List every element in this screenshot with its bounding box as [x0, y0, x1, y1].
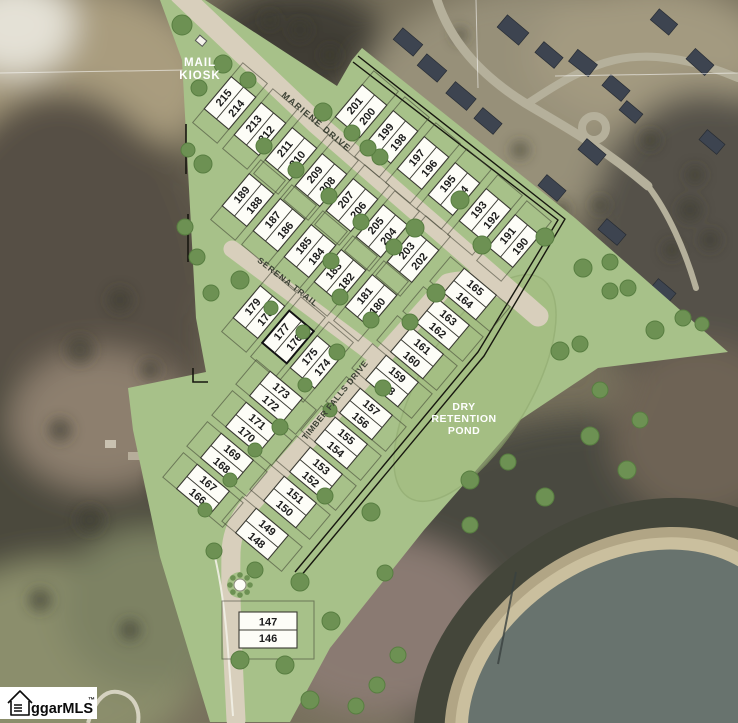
tree-icon: [646, 321, 664, 339]
tree-icon: [247, 562, 263, 578]
tree-icon: [353, 214, 369, 230]
tree-icon: [572, 336, 588, 352]
tree-icon: [291, 573, 309, 591]
tree-icon: [189, 249, 205, 265]
tree-icon: [321, 188, 337, 204]
svg-text:POND: POND: [448, 425, 480, 437]
tree-icon: [473, 236, 491, 254]
tree-icon: [240, 72, 256, 88]
tree-icon: [194, 155, 212, 173]
tree-icon: [369, 677, 385, 693]
tree-icon: [632, 412, 648, 428]
tree-icon: [181, 143, 195, 157]
tree-icon: [256, 138, 272, 154]
tree-icon: [322, 612, 340, 630]
tree-icon: [264, 301, 278, 315]
site-plan-image: 2152142132122112102092082072062052042032…: [0, 0, 738, 723]
tree-icon: [296, 325, 310, 339]
tree-icon: [390, 647, 406, 663]
svg-text:RETENTION: RETENTION: [431, 413, 496, 425]
tree-icon: [427, 284, 445, 302]
tree-icon: [581, 427, 599, 445]
mail-kiosk-label: MAIL KIOSK: [179, 57, 220, 82]
svg-text:MAIL: MAIL: [184, 57, 216, 69]
svg-text:™: ™: [88, 697, 95, 704]
tree-icon: [276, 656, 294, 674]
tree-icon: [602, 254, 618, 270]
tree-icon: [198, 503, 212, 517]
lot-number: 147: [259, 617, 277, 629]
tree-icon: [223, 473, 237, 487]
mls-logo: ggarMLS ™: [0, 687, 97, 719]
site-map: 2152142132122112102092082072062052042032…: [0, 0, 738, 723]
tree-icon: [172, 15, 192, 35]
tree-icon: [451, 191, 469, 209]
landscape-island-icon: [227, 572, 253, 598]
tree-icon: [323, 253, 339, 269]
tree-icon: [695, 317, 709, 331]
tree-icon: [203, 285, 219, 301]
svg-text:DRY: DRY: [452, 401, 475, 413]
tree-icon: [402, 314, 418, 330]
tree-icon: [329, 344, 345, 360]
tree-icon: [377, 565, 393, 581]
tree-icon: [574, 259, 592, 277]
svg-text:KIOSK: KIOSK: [179, 70, 220, 82]
svg-text:ggarMLS: ggarMLS: [31, 701, 93, 717]
tree-icon: [360, 140, 376, 156]
tree-icon: [248, 443, 262, 457]
tree-icon: [272, 419, 288, 435]
tree-icon: [231, 271, 249, 289]
tree-icon: [348, 698, 364, 714]
tree-icon: [536, 488, 554, 506]
tree-icon: [362, 503, 380, 521]
tree-icon: [618, 461, 636, 479]
tree-icon: [461, 471, 479, 489]
tree-icon: [406, 219, 424, 237]
tree-icon: [602, 283, 618, 299]
tree-icon: [298, 378, 312, 392]
tree-icon: [363, 312, 379, 328]
tree-icon: [231, 651, 249, 669]
tree-icon: [301, 691, 319, 709]
tree-icon: [462, 517, 478, 533]
tree-icon: [206, 543, 222, 559]
tree-icon: [551, 342, 569, 360]
tree-icon: [317, 488, 333, 504]
tree-icon: [375, 380, 391, 396]
tree-icon: [332, 289, 348, 305]
tree-icon: [675, 310, 691, 326]
lot-number: 146: [259, 633, 277, 645]
tree-icon: [500, 454, 516, 470]
tree-icon: [386, 239, 402, 255]
tree-icon: [191, 80, 207, 96]
tree-icon: [592, 382, 608, 398]
tree-icon: [288, 162, 304, 178]
tree-icon: [177, 219, 193, 235]
tree-icon: [536, 228, 554, 246]
tree-icon: [344, 125, 360, 141]
tree-icon: [620, 280, 636, 296]
